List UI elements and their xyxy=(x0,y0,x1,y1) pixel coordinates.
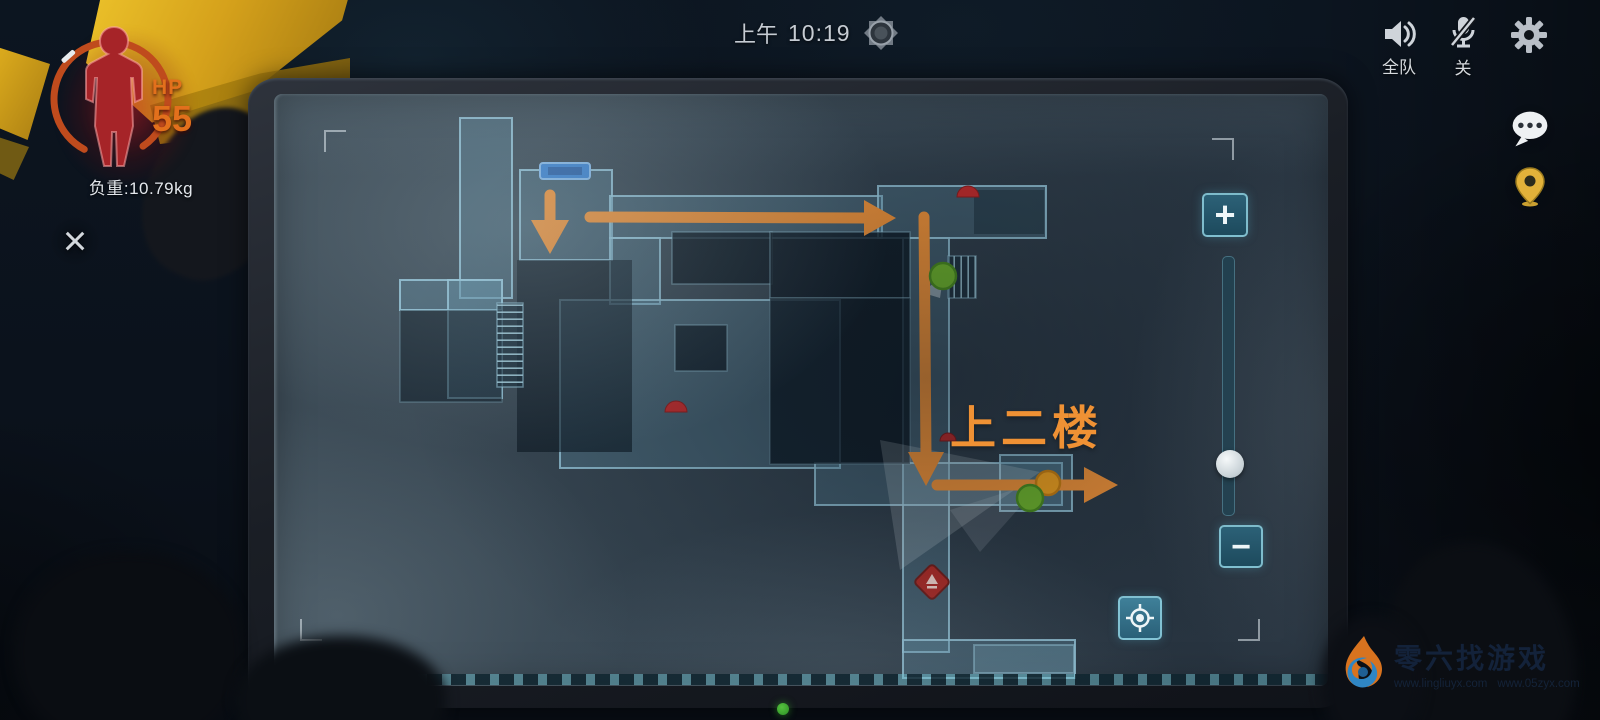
watermark-logo-icon xyxy=(1334,634,1386,692)
voice-channel-label: 全队 xyxy=(1382,53,1416,78)
minimap-screen[interactable]: 上二楼 + − xyxy=(274,94,1328,686)
settings-button[interactable] xyxy=(1504,15,1554,55)
hand-shadow xyxy=(14,552,244,720)
time-display: 上午 10:19 xyxy=(734,13,901,53)
mic-button[interactable]: 关 xyxy=(1438,15,1488,79)
health-indicator: HP 55 负重:10.79kg xyxy=(28,16,228,216)
chat-bubble-icon xyxy=(1508,108,1552,150)
crosshair-icon xyxy=(1125,603,1155,633)
map-tablet: 上二楼 + − xyxy=(248,78,1348,708)
map-corner-bracket xyxy=(324,130,346,152)
stairs-icon-large xyxy=(497,303,523,387)
voice-channel-button[interactable]: 全队 xyxy=(1372,18,1426,78)
location-ping-button[interactable] xyxy=(1502,162,1558,212)
game-screen: 上二楼 + − 上午 10:19 xyxy=(0,0,1600,720)
device-indicator-light xyxy=(777,703,789,715)
time-period-label: 上午 xyxy=(734,17,778,49)
speaker-icon xyxy=(1381,18,1417,50)
gear-icon xyxy=(1509,15,1549,55)
site-watermark: 零六找游戏 www.lingliuyx.com www.05zyx.com xyxy=(1334,634,1580,692)
mic-state-label: 关 xyxy=(1455,54,1472,79)
map-corner-bracket xyxy=(1212,138,1234,160)
map-corner-bracket xyxy=(1238,619,1260,641)
route-annotation-label: 上二楼 xyxy=(950,392,1103,458)
zoom-out-button[interactable]: − xyxy=(1219,525,1263,568)
hp-figure-icon xyxy=(72,24,157,174)
floorplan-map xyxy=(274,94,1328,686)
weight-label: 负重:10.79kg xyxy=(56,174,226,199)
mic-muted-icon xyxy=(1446,15,1480,51)
exit-door-marker xyxy=(540,163,590,179)
locate-button[interactable] xyxy=(1118,596,1162,640)
close-button[interactable]: × xyxy=(50,216,100,266)
hp-label: HP xyxy=(152,76,192,100)
zoom-slider-thumb[interactable] xyxy=(1216,450,1244,478)
hp-value: 55 xyxy=(152,98,192,140)
chat-button[interactable] xyxy=(1502,104,1558,154)
watermark-url-primary: www.lingliuyx.com xyxy=(1394,678,1487,690)
time-value: 10:19 xyxy=(788,20,851,47)
yellow-glove-edge xyxy=(0,136,29,180)
sun-time-icon xyxy=(861,13,901,53)
map-pin-icon xyxy=(1512,166,1548,208)
teammate-marker xyxy=(930,263,956,289)
zoom-in-button[interactable]: + xyxy=(1202,193,1248,237)
watermark-site-name: 零六找游戏 xyxy=(1394,637,1580,677)
teammate-marker xyxy=(1017,485,1043,511)
watermark-url-secondary: www.05zyx.com xyxy=(1497,678,1579,690)
